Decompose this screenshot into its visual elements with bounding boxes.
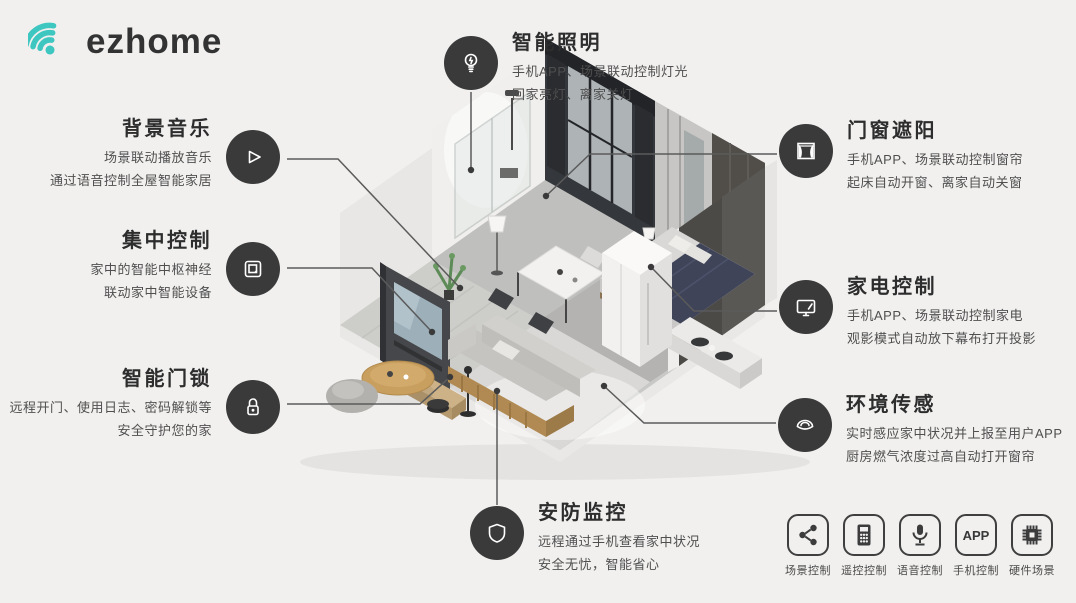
mode-remote-control: 遥控控制 (838, 514, 890, 578)
feature-central-control: 集中控制 家中的智能中枢神经 联动家中智能设备 (2, 228, 280, 304)
feature-smart-door-lock: 智能门锁 远程开门、使用日志、密码解锁等 安全守护您的家 (2, 366, 280, 442)
feature-title: 门窗遮阳 (847, 118, 1023, 144)
ezhome-logo: ezhome (28, 14, 222, 65)
feature-desc: 家中的智能中枢神经 (2, 258, 212, 281)
mode-phone-control: APP 手机控制 (950, 514, 1002, 578)
shield-icon (470, 506, 524, 560)
mode-voice-control: 语音控制 (894, 514, 946, 578)
feature-desc: 起床自动开窗、离家自动关窗 (847, 171, 1023, 194)
fridge-cabinet (602, 231, 672, 367)
feature-desc: 厨房燃气浓度过高自动打开窗帘 (846, 445, 1063, 468)
bean-bag (326, 379, 378, 413)
feature-title: 背景音乐 (2, 116, 212, 142)
feature-desc: 手机APP、场景联动控制家电 (847, 304, 1036, 327)
feature-desc: 手机APP、场景联动控制窗帘 (847, 148, 1023, 171)
mode-scene-control: 场景控制 (782, 514, 834, 578)
feature-environment-sensing: 环境传感 实时感应家中状况并上报至用户APP 厨房燃气浓度过高自动打开窗帘 (778, 392, 1063, 468)
feature-title: 家电控制 (847, 274, 1036, 300)
mic-icon (899, 514, 941, 556)
control-panel-icon (226, 242, 280, 296)
feature-desc: 实时感应家中状况并上报至用户APP (846, 422, 1063, 445)
feature-window-shading: 门窗遮阳 手机APP、场景联动控制窗帘 起床自动开窗、离家自动关窗 (779, 118, 1023, 194)
feature-desc: 远程开门、使用日志、密码解锁等 (2, 396, 212, 419)
feature-desc: 回家亮灯、离家关灯 (512, 83, 688, 106)
mode-label: 语音控制 (897, 562, 943, 578)
feature-smart-lighting: 智能照明 手机APP、场景联动控制灯光 回家亮灯、离家关灯 (444, 30, 688, 106)
feature-desc: 安全守护您的家 (2, 419, 212, 442)
feature-title: 智能门锁 (2, 366, 212, 392)
stool (427, 399, 449, 413)
mode-label: 手机控制 (953, 562, 999, 578)
remote-icon (843, 514, 885, 556)
app-icon-text: APP (963, 528, 990, 543)
chip-icon (1011, 514, 1053, 556)
control-modes-row: 场景控制 遥控控制 语音控制 (782, 514, 1058, 578)
mode-label: 场景控制 (785, 562, 831, 578)
wifi-logo-icon (28, 14, 80, 65)
feature-title: 环境传感 (846, 392, 1063, 418)
mode-label: 遥控控制 (841, 562, 887, 578)
feature-background-music: 背景音乐 场景联动播放音乐 通过语音控制全屋智能家居 (2, 116, 280, 192)
share-icon (787, 514, 829, 556)
feature-desc: 联动家中智能设备 (2, 281, 212, 304)
feature-title: 集中控制 (2, 228, 212, 254)
bulb-icon (444, 36, 498, 90)
feature-desc: 手机APP、场景联动控制灯光 (512, 60, 688, 83)
app-icon: APP (955, 514, 997, 556)
logo-text: ezhome (86, 24, 222, 59)
sensor-icon (778, 398, 832, 452)
feature-desc: 远程通过手机查看家中状况 (538, 530, 700, 553)
tv-icon (779, 280, 833, 334)
feature-desc: 场景联动播放音乐 (2, 146, 212, 169)
feature-title: 安防监控 (538, 500, 700, 526)
curtain-icon (779, 124, 833, 178)
feature-desc: 安全无忧，智能省心 (538, 553, 700, 576)
feature-security-monitoring: 安防监控 远程通过手机查看家中状况 安全无忧，智能省心 (470, 500, 700, 576)
play-icon (226, 130, 280, 184)
mode-label: 硬件场景 (1009, 562, 1055, 578)
feature-title: 智能照明 (512, 30, 688, 56)
feature-appliance-control: 家电控制 手机APP、场景联动控制家电 观影模式自动放下幕布打开投影 (779, 274, 1036, 350)
mode-hardware-scene: 硬件场景 (1006, 514, 1058, 578)
lock-icon (226, 380, 280, 434)
feature-desc: 通过语音控制全屋智能家居 (2, 169, 212, 192)
feature-desc: 观影模式自动放下幕布打开投影 (847, 327, 1036, 350)
